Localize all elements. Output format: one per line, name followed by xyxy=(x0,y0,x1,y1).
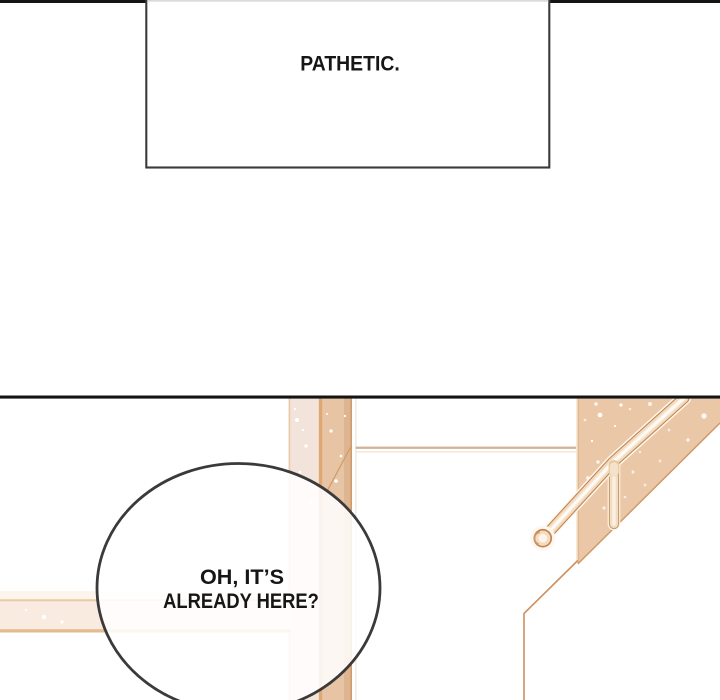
svg-text:OH, IT’S: OH, IT’S xyxy=(200,566,284,589)
svg-text:ALREADY HERE?: ALREADY HERE? xyxy=(163,590,319,613)
svg-text:PATHETIC.: PATHETIC. xyxy=(300,52,400,76)
